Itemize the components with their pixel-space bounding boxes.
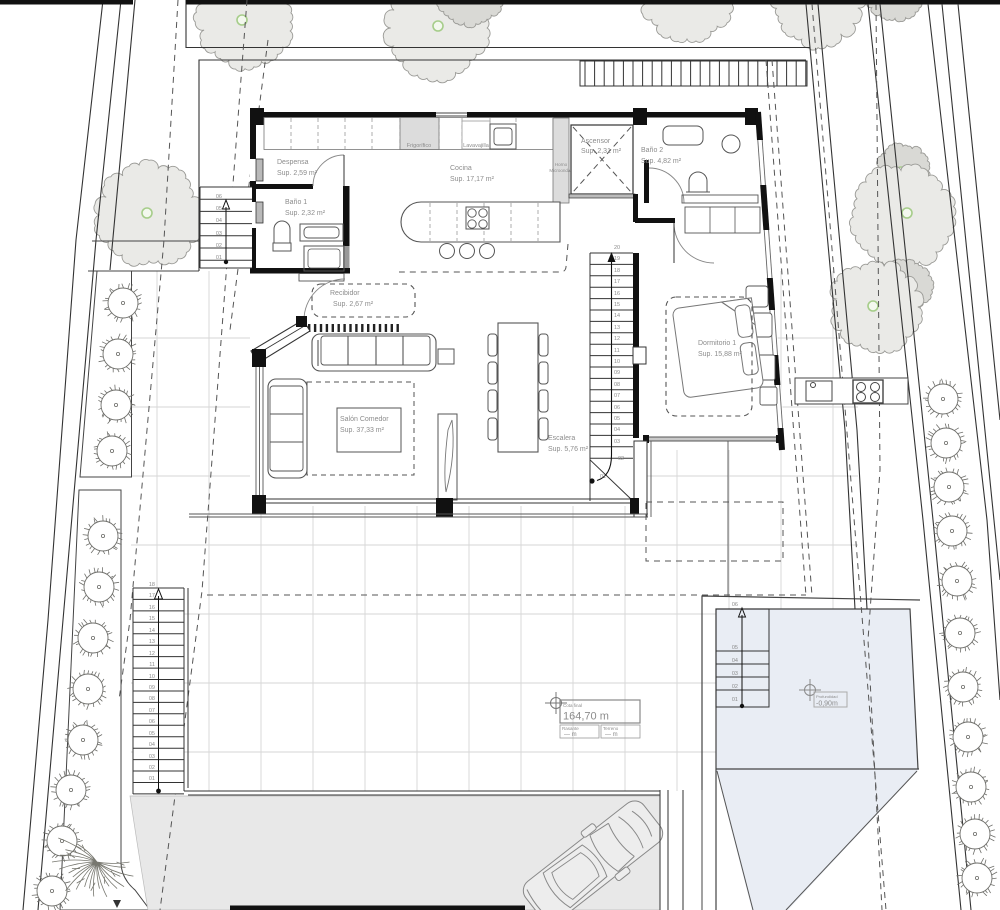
svg-text:06: 06 bbox=[149, 719, 155, 725]
svg-text:— m: — m bbox=[564, 732, 577, 738]
svg-text:11: 11 bbox=[149, 662, 155, 668]
svg-text:Terreno: Terreno bbox=[603, 726, 619, 731]
svg-text:Cota final: Cota final bbox=[563, 703, 582, 708]
svg-text:Frigorífico: Frigorífico bbox=[407, 143, 431, 149]
svg-text:02: 02 bbox=[732, 684, 738, 690]
svg-text:06: 06 bbox=[216, 194, 222, 200]
svg-text:02: 02 bbox=[149, 765, 155, 771]
svg-text:03: 03 bbox=[216, 231, 222, 237]
svg-text:04: 04 bbox=[732, 658, 738, 664]
svg-text:07: 07 bbox=[149, 708, 155, 714]
svg-text:15: 15 bbox=[614, 302, 620, 308]
svg-text:14: 14 bbox=[614, 313, 620, 319]
svg-text:— m: — m bbox=[605, 732, 618, 738]
svg-text:Despensa: Despensa bbox=[277, 159, 309, 166]
svg-text:11: 11 bbox=[614, 348, 620, 354]
svg-text:19: 19 bbox=[614, 256, 620, 262]
svg-text:08: 08 bbox=[149, 696, 155, 702]
svg-text:15: 15 bbox=[149, 616, 155, 622]
svg-text:12: 12 bbox=[614, 336, 620, 342]
svg-text:10: 10 bbox=[149, 674, 155, 680]
svg-text:Recibidor: Recibidor bbox=[330, 290, 360, 297]
svg-text:02: 02 bbox=[216, 243, 222, 249]
svg-text:17: 17 bbox=[614, 279, 620, 285]
svg-text:03: 03 bbox=[614, 439, 620, 445]
svg-text:12: 12 bbox=[149, 651, 155, 657]
svg-text:04: 04 bbox=[216, 218, 222, 224]
svg-text:06: 06 bbox=[614, 405, 620, 411]
svg-text:01: 01 bbox=[149, 776, 155, 782]
svg-text:Lavavajilla: Lavavajilla bbox=[463, 143, 490, 149]
svg-text:05: 05 bbox=[149, 731, 155, 737]
svg-text:Horno: Horno bbox=[555, 162, 568, 167]
svg-text:07: 07 bbox=[614, 393, 620, 399]
svg-text:03: 03 bbox=[732, 671, 738, 677]
svg-text:Sup. 2,59 m²: Sup. 2,59 m² bbox=[277, 170, 318, 177]
svg-text:Escalera: Escalera bbox=[548, 435, 575, 442]
svg-text:Sup. 5,76 m²: Sup. 5,76 m² bbox=[548, 446, 589, 453]
svg-text:Microondas: Microondas bbox=[549, 168, 573, 173]
svg-text:16: 16 bbox=[149, 605, 155, 611]
svg-text:04: 04 bbox=[614, 427, 620, 433]
svg-text:13: 13 bbox=[149, 639, 155, 645]
svg-text:16: 16 bbox=[614, 291, 620, 297]
svg-text:09: 09 bbox=[614, 370, 620, 376]
svg-text:10: 10 bbox=[614, 359, 620, 365]
svg-text:Sup. 2,32 m²: Sup. 2,32 m² bbox=[285, 210, 326, 217]
svg-text:Sup. 15,88 m²: Sup. 15,88 m² bbox=[698, 351, 743, 358]
svg-text:08: 08 bbox=[614, 382, 620, 388]
svg-text:01: 01 bbox=[732, 697, 738, 703]
svg-text:05: 05 bbox=[216, 206, 222, 212]
svg-text:Ascensor: Ascensor bbox=[581, 138, 611, 145]
svg-text:09: 09 bbox=[149, 685, 155, 691]
svg-text:Sup. 17,17 m²: Sup. 17,17 m² bbox=[450, 176, 495, 183]
svg-text:Sup. 4,82 m²: Sup. 4,82 m² bbox=[641, 158, 682, 165]
svg-text:13: 13 bbox=[614, 325, 620, 331]
svg-text:18: 18 bbox=[614, 268, 620, 274]
svg-text:05: 05 bbox=[614, 416, 620, 422]
svg-text:17: 17 bbox=[149, 593, 155, 599]
svg-text:18: 18 bbox=[149, 582, 155, 588]
svg-text:04: 04 bbox=[149, 742, 155, 748]
svg-text:Profundidad: Profundidad bbox=[816, 694, 838, 699]
svg-text:03: 03 bbox=[149, 754, 155, 760]
svg-text:164,70 m: 164,70 m bbox=[563, 711, 609, 723]
svg-text:01: 01 bbox=[216, 255, 222, 261]
svg-text:Salón Comedor: Salón Comedor bbox=[340, 416, 389, 423]
svg-text:Sup. 2,67 m²: Sup. 2,67 m² bbox=[333, 301, 374, 308]
svg-text:20: 20 bbox=[614, 245, 620, 251]
svg-text:05: 05 bbox=[732, 645, 738, 651]
svg-text:Baño 2: Baño 2 bbox=[641, 147, 663, 154]
svg-text:Sup. 37,33 m²: Sup. 37,33 m² bbox=[340, 427, 385, 434]
svg-text:06: 06 bbox=[732, 602, 738, 608]
svg-text:01: 01 bbox=[600, 474, 606, 480]
svg-text:14: 14 bbox=[149, 628, 155, 634]
svg-text:Baño 1: Baño 1 bbox=[285, 199, 307, 206]
svg-text:-0,90m: -0,90m bbox=[816, 701, 838, 708]
svg-text:Dormitorio 1: Dormitorio 1 bbox=[698, 340, 736, 347]
svg-text:Rasante: Rasante bbox=[562, 726, 579, 731]
svg-text:Sup. 2,31 m²: Sup. 2,31 m² bbox=[581, 148, 622, 155]
svg-text:02: 02 bbox=[618, 456, 624, 462]
svg-text:Cocina: Cocina bbox=[450, 165, 472, 172]
